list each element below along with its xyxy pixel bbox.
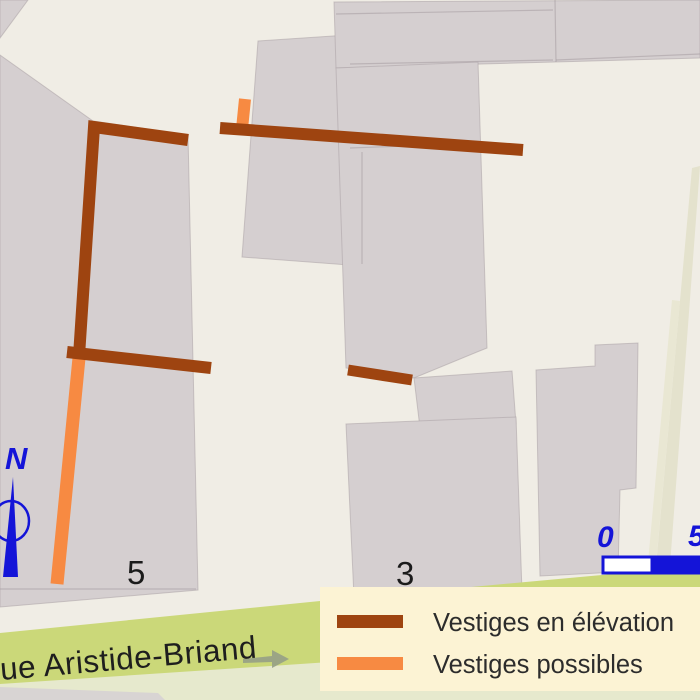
parcel-number-5: 5	[127, 554, 145, 591]
parcel-polygon	[336, 62, 487, 378]
parcel-number-3: 3	[396, 555, 414, 592]
north-label: N	[5, 441, 28, 476]
legend-label-possible: Vestiges possibles	[433, 651, 643, 679]
legend-swatch-possible	[337, 657, 403, 670]
scale-label-end: 5	[688, 520, 700, 553]
scale-bar-filled-segment	[652, 557, 700, 573]
scale-label-start: 0	[597, 521, 614, 554]
legend-label-elevation: Vestiges en élévation	[433, 609, 674, 637]
legend-swatch-elevation	[337, 615, 403, 628]
parcel-polygon	[346, 417, 522, 597]
map-viewport: rue Aristide-Briand 5 3 N 0 5 Vestiges e…	[0, 0, 700, 700]
legend: Vestiges en élévation Vestiges possibles	[320, 587, 700, 691]
